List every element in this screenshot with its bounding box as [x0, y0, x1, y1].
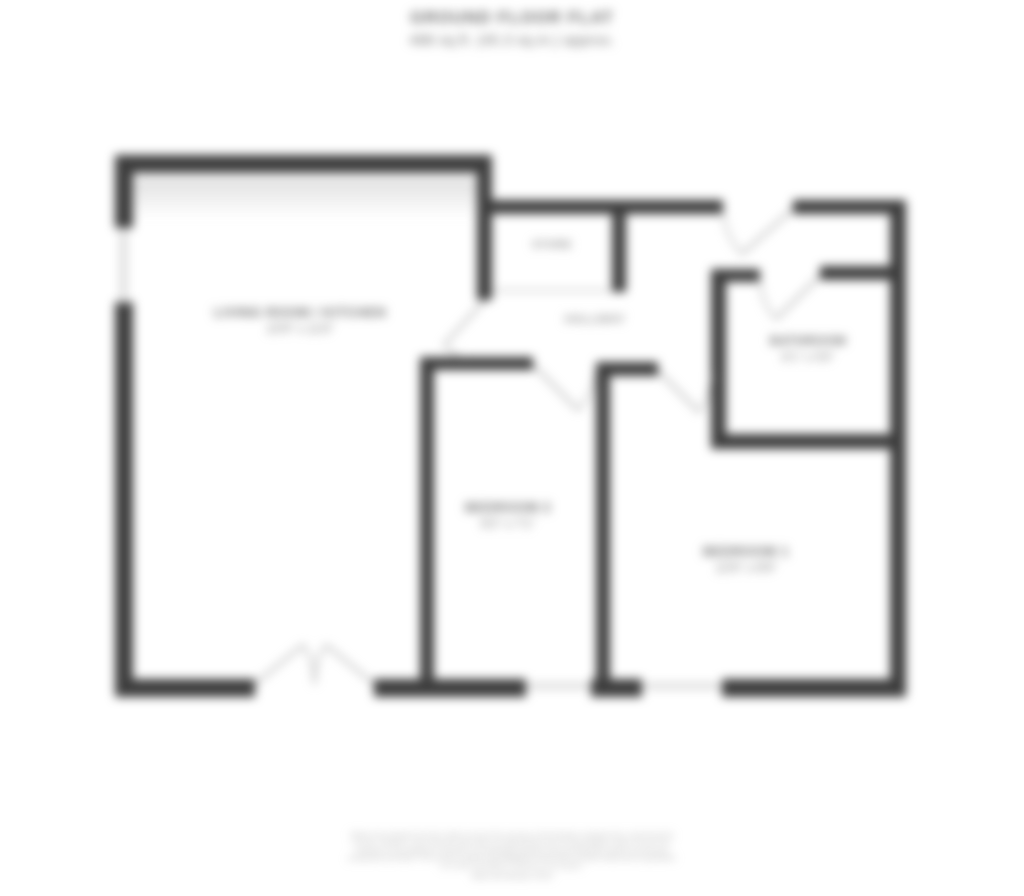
room-label-bathroom: BATHROOM 6'1" x 5'6": [744, 334, 872, 364]
door-arc-bedroom-middle: [578, 366, 596, 410]
floorplan-page: GROUND FLOOR FLAT 488 sq.ft. (45.3 sq.m.…: [0, 0, 1024, 896]
room-name-hallway: HALLWAY: [510, 312, 680, 326]
door-swings: [0, 0, 1024, 896]
disclaimer-line: as to their operability or efficiency ca…: [302, 863, 722, 871]
room-name-bedroom-right: BEDROOM 1: [682, 544, 810, 559]
room-name-bedroom-middle: BEDROOM 2: [444, 500, 572, 515]
room-name-living: LIVING ROOM / KITCHEN: [150, 305, 450, 320]
room-label-hallway: HALLWAY: [510, 312, 680, 326]
door-arc-entrance: [723, 211, 742, 254]
patio-door-arcs: [303, 645, 326, 684]
disclaimer-line: prospective purchaser. The services, sys…: [302, 855, 722, 863]
door-leaf-entrance: [742, 209, 793, 254]
door-leaf-bathroom: [776, 276, 820, 319]
door-arc-bedroom-right: [699, 372, 711, 412]
disclaimer-line: of doors, windows, rooms and any other i…: [302, 840, 722, 848]
disclaimer-line: omission or mis-statement. This plan is …: [302, 848, 722, 856]
door-leaf-bedroom-middle: [533, 365, 578, 410]
room-label-living: LIVING ROOM / KITCHEN 15'9" x 11'6": [150, 305, 450, 336]
room-dims-bedroom-right: 12'6" x 8'9": [682, 561, 810, 575]
blurred-floorplan: GROUND FLOOR FLAT 488 sq.ft. (45.3 sq.m.…: [0, 0, 1024, 896]
door-arc-living: [444, 345, 463, 358]
room-dims-bathroom: 6'1" x 5'6": [744, 350, 872, 364]
patio-door-leaf-right: [326, 645, 374, 684]
patio-door-leaf-left: [255, 645, 303, 684]
room-name-bathroom: BATHROOM: [744, 334, 872, 348]
room-name-store: STORE: [492, 239, 612, 251]
door-leaf-living: [444, 300, 485, 345]
room-dims-bedroom-middle: 9'2" x 7'1": [444, 517, 572, 531]
door-arc-bathroom: [760, 277, 776, 319]
disclaimer-text: Whilst every attempt has been made to en…: [302, 832, 722, 881]
room-dims-living: 15'9" x 11'6": [150, 322, 450, 336]
room-label-bedroom-right: BEDROOM 1 12'6" x 8'9": [682, 544, 810, 575]
metropix-credit: Made with Metropix ©2024: [302, 873, 722, 881]
room-label-store: STORE: [492, 239, 612, 251]
disclaimer-line: Whilst every attempt has been made to en…: [302, 832, 722, 840]
room-label-bedroom-middle: BEDROOM 2 9'2" x 7'1": [444, 500, 572, 531]
door-leaf-bedroom-right: [658, 371, 699, 412]
